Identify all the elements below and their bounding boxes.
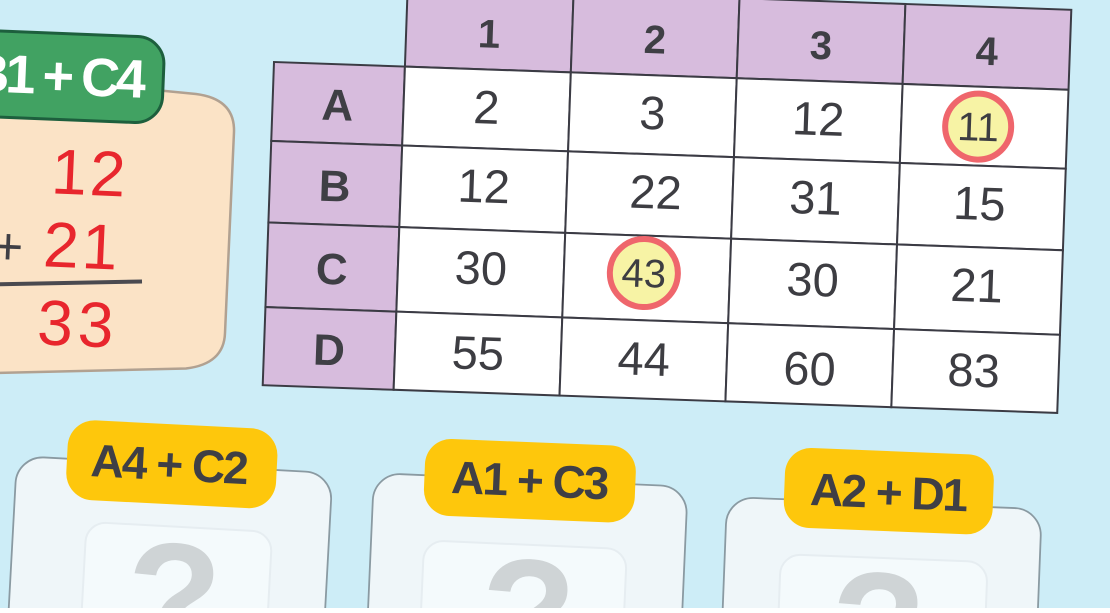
svg-text:A: A — [321, 81, 354, 131]
svg-text:?: ? — [827, 539, 928, 608]
svg-text:21: 21 — [42, 208, 122, 283]
svg-text:60: 60 — [783, 341, 837, 396]
svg-text:A4 + C2: A4 + C2 — [90, 434, 249, 494]
svg-text:33: 33 — [36, 286, 120, 361]
svg-text:B1 + C4: B1 + C4 — [0, 43, 147, 110]
svg-text:D: D — [312, 326, 345, 376]
svg-text:?: ? — [477, 525, 579, 608]
svg-text:22: 22 — [629, 165, 683, 220]
svg-text:43: 43 — [621, 251, 667, 297]
svg-text:?: ? — [122, 509, 226, 608]
svg-text:4: 4 — [975, 29, 1000, 74]
svg-text:12: 12 — [457, 159, 511, 214]
svg-text:11: 11 — [957, 105, 1000, 150]
svg-text:A2 + D1: A2 + D1 — [809, 463, 968, 521]
svg-text:3: 3 — [638, 86, 666, 140]
svg-text:A1 + C3: A1 + C3 — [450, 451, 608, 509]
svg-text:15: 15 — [952, 176, 1006, 231]
svg-text:2: 2 — [473, 80, 501, 134]
svg-text:83: 83 — [947, 343, 1001, 398]
svg-text:12: 12 — [791, 91, 845, 146]
svg-text:30: 30 — [786, 252, 840, 307]
svg-text:31: 31 — [789, 170, 843, 225]
svg-text:55: 55 — [451, 325, 505, 380]
svg-text:2: 2 — [643, 18, 667, 63]
svg-text:+: + — [0, 217, 24, 276]
svg-text:21: 21 — [950, 258, 1004, 313]
svg-text:12: 12 — [50, 135, 130, 210]
svg-text:30: 30 — [454, 240, 508, 295]
svg-text:B: B — [318, 162, 351, 212]
svg-text:C: C — [315, 245, 348, 295]
svg-text:44: 44 — [617, 331, 671, 386]
svg-text:3: 3 — [809, 24, 833, 69]
svg-text:1: 1 — [477, 12, 501, 57]
